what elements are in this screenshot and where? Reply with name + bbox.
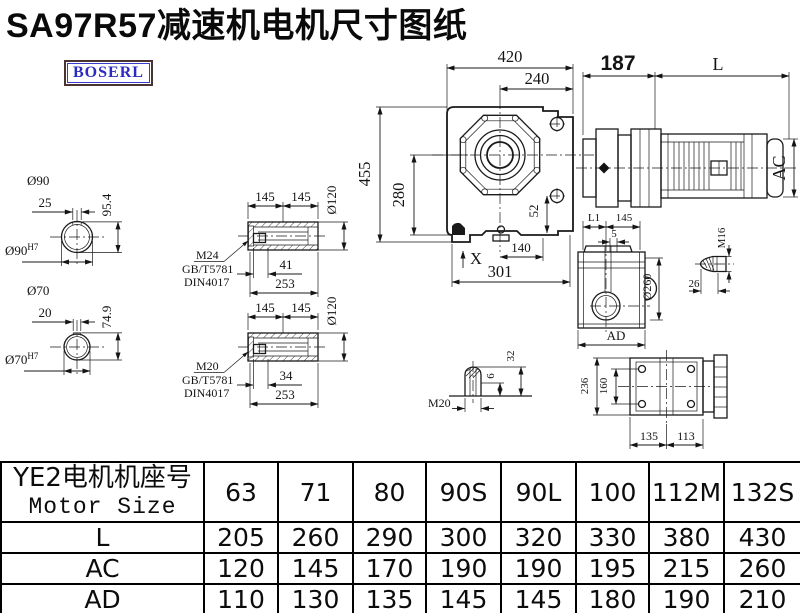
dim-shaft70-height: 74.9 [99, 306, 114, 329]
table-cell: 205 [204, 522, 278, 553]
dim-m16-thread: M16 [716, 227, 728, 248]
dim-shaft90-dia: Ø90 [27, 173, 49, 188]
shaft-end-view-70: Ø70 20 74.9 Ø70H7 [5, 283, 122, 375]
dim-rear-113: 113 [677, 429, 695, 443]
dim-m20s-total: 253 [275, 387, 295, 402]
table-cell: 260 [278, 522, 353, 553]
dim-m20s-len2: 145 [291, 300, 311, 315]
dim-overall-height: 455 [355, 162, 374, 187]
gearbox-rear-view: 160 236 135 113 [579, 350, 727, 449]
dim-m20s-len1: 145 [255, 300, 275, 315]
label-m24-thread: M24 [196, 248, 219, 262]
header-motor-size-cn: YE2电机机座号 [2, 464, 203, 494]
size-col: 71 [278, 462, 353, 522]
table-cell: 300 [426, 522, 501, 553]
dim-rear-160: 160 [598, 377, 610, 394]
bolt-m20-detail: M20 6 32 [428, 351, 532, 413]
size-col: 80 [353, 462, 426, 522]
table-cell: 190 [501, 553, 576, 584]
size-col: 63 [204, 462, 278, 522]
hollow-shaft-view-m20: 145 145 Ø120 M20 GB/T5781 DIN4017 34 253 [182, 297, 348, 408]
table-cell: 170 [353, 553, 426, 584]
header-motor-size-en: Motor Size [2, 494, 203, 520]
dim-rear-236: 236 [579, 377, 591, 394]
table-cell: 260 [724, 553, 800, 584]
label-x: X [470, 249, 482, 268]
table-cell: 320 [501, 522, 576, 553]
bolt-m16-detail: M16 26 [689, 227, 735, 294]
dim-side-145: 145 [616, 212, 633, 224]
dim-overall-width: 420 [498, 47, 523, 66]
shaft-end-view-90: Ø90 25 95.4 Ø90H7 [5, 173, 122, 266]
table-cell: 190 [649, 584, 724, 613]
row-label: L [1, 522, 204, 553]
dim-m20-32: 32 [505, 351, 517, 362]
motor-size-table: YE2电机机座号 Motor Size 63 71 80 90S 90L 100… [0, 461, 800, 613]
hollow-shaft-view-m24: 145 145 Ø120 M24 GB/T5781 DIN4017 41 253 [182, 186, 348, 297]
table-cell: 190 [426, 553, 501, 584]
table-cell: 290 [353, 522, 426, 553]
dim-center-to-base: 280 [389, 183, 408, 208]
dim-l1: L1 [588, 212, 600, 224]
gearbox-side-view: L1 145 5 Ø260 AD [578, 212, 663, 349]
table-cell: 430 [724, 522, 800, 553]
size-col: 90S [426, 462, 501, 522]
dim-m24-total: 253 [275, 276, 295, 291]
table-cell: 215 [649, 553, 724, 584]
table-cell: 180 [576, 584, 649, 613]
dim-rear-135: 135 [640, 429, 658, 443]
table-cell: 135 [353, 584, 426, 613]
table-cell: 330 [576, 522, 649, 553]
dim-m20s-dia: Ø120 [324, 297, 339, 326]
size-col: 112M [649, 462, 724, 522]
table-row-L: L 205 260 290 300 320 330 380 430 [1, 522, 800, 553]
dim-adapter-length: 187 [600, 52, 635, 75]
dim-motor-length: L [713, 54, 724, 74]
table-row-AD: AD 110 130 135 145 145 180 190 210 [1, 584, 800, 613]
gearbox-front-view: 420 240 455 280 52 X 140 301 [355, 47, 594, 287]
dim-shaft70-bore: Ø70H7 [5, 351, 39, 367]
size-col: 132S [724, 462, 800, 522]
dim-shaft90-key: 25 [39, 195, 52, 210]
label-m20s-din: DIN4017 [184, 386, 229, 400]
label-m24-gb: GB/T5781 [182, 262, 233, 276]
row-label: AC [1, 553, 204, 584]
dim-side-5: 5 [611, 228, 617, 240]
dim-shaft70-dia: Ø70 [27, 283, 49, 298]
table-row-AC: AC 120 145 170 190 190 195 215 260 [1, 553, 800, 584]
dim-flange-dia: Ø260 [640, 274, 654, 301]
dim-m24-len2: 145 [291, 189, 311, 204]
table-header-row: YE2电机机座号 Motor Size 63 71 80 90S 90L 100… [1, 462, 800, 522]
table-cell: 210 [724, 584, 800, 613]
dim-140: 140 [511, 240, 531, 255]
dim-shaft70-key: 20 [39, 305, 52, 320]
size-col: 90L [501, 462, 576, 522]
motor-assembly-view: 187 L AC [576, 52, 798, 207]
dim-301: 301 [488, 262, 513, 281]
header-motor-size: YE2电机机座号 Motor Size [1, 462, 204, 522]
dim-m20-thread: M20 [428, 396, 451, 410]
table-cell: 145 [426, 584, 501, 613]
row-label: AD [1, 584, 204, 613]
dim-m16-26: 26 [689, 278, 701, 290]
table-cell: 380 [649, 522, 724, 553]
dim-flange-width: 240 [525, 69, 550, 88]
dim-shaft90-bore: Ø90H7 [5, 242, 39, 258]
dim-m24-dia: Ø120 [324, 186, 339, 215]
dim-m24-bolt-len: 41 [280, 257, 293, 272]
dim-shaft90-height: 95.4 [99, 193, 114, 216]
dim-52: 52 [526, 205, 541, 218]
dim-motor-diameter: AC [769, 155, 789, 180]
dim-m20s-bolt-len: 34 [280, 368, 294, 383]
size-col: 100 [576, 462, 649, 522]
table-cell: 130 [278, 584, 353, 613]
label-m24-din: DIN4017 [184, 275, 229, 289]
dim-m24-len1: 145 [255, 189, 275, 204]
table-cell: 145 [501, 584, 576, 613]
table-cell: 120 [204, 553, 278, 584]
technical-drawing: Ø90 25 95.4 Ø90H7 Ø70 [0, 0, 800, 462]
dim-m20-6: 6 [485, 373, 497, 379]
label-m20s-thread: M20 [196, 359, 219, 373]
dim-ad: AD [607, 328, 626, 343]
table-cell: 195 [576, 553, 649, 584]
table-cell: 145 [278, 553, 353, 584]
label-m20s-gb: GB/T5781 [182, 373, 233, 387]
table-cell: 110 [204, 584, 278, 613]
drawing-page: SA97R57减速机电机尺寸图纸 BOSERL Ø90 25 [0, 0, 800, 613]
